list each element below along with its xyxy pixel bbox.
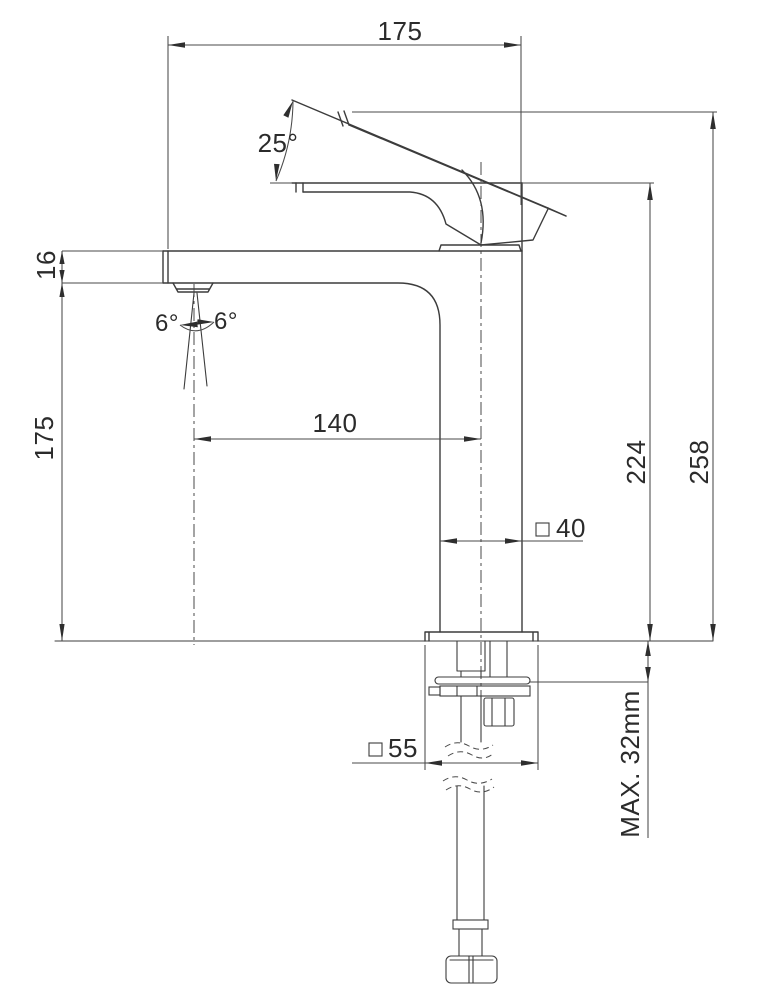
hose-hex-nut-facets — [450, 956, 493, 983]
dim-spout-reach-label: 140 — [313, 408, 358, 438]
water-spray-left-line — [184, 293, 194, 389]
dim-spout-thickness-label: 16 — [31, 250, 61, 280]
centerlines — [194, 162, 481, 740]
dim-body-top-height-label: 224 — [621, 440, 651, 485]
tap-dimension-diagram: 175 25° 16 6° 6° 175 140 224 258 40 55 M… — [0, 0, 763, 1000]
arrowhead — [647, 183, 653, 200]
arrowhead — [521, 760, 538, 766]
clamp-plate — [440, 686, 530, 696]
lever-raised-bottom-edge — [349, 125, 566, 216]
square-symbol-icon — [369, 743, 382, 756]
arrowhead — [464, 436, 481, 442]
mounting-nut — [484, 698, 514, 726]
mounting-nut-facets — [492, 698, 505, 726]
dim-top-width-label: 175 — [378, 16, 423, 46]
arrowhead — [194, 436, 211, 442]
clamp-plate-detail — [457, 686, 477, 696]
rod-break-line — [445, 743, 494, 758]
head-front-curve — [462, 170, 483, 243]
water-spray-right-line — [197, 293, 207, 386]
arrowhead — [645, 667, 651, 682]
arrowhead — [59, 283, 64, 297]
hose-collar — [453, 920, 488, 929]
arrowhead — [504, 42, 521, 48]
square-symbol-icon — [536, 523, 549, 536]
arrowhead — [505, 538, 522, 544]
faucet-outline — [55, 100, 713, 641]
dim-lever-angle-label: 25° — [258, 128, 299, 158]
technical-drawing-sheet: 175 25° 16 6° 6° 175 140 224 258 40 55 M… — [0, 0, 763, 1000]
mounting-hardware — [429, 641, 530, 983]
dim-overall-height-label: 258 — [684, 440, 714, 485]
arrowhead — [283, 101, 293, 118]
arrowhead — [647, 624, 653, 641]
arrowhead — [425, 760, 442, 766]
hose-neck — [459, 929, 482, 956]
head-neck-flange — [439, 245, 521, 251]
dimension-labels: 175 25° 16 6° 6° 175 140 224 258 40 55 M… — [29, 16, 714, 838]
arrowhead — [59, 624, 64, 641]
head-right-vee — [481, 209, 548, 245]
dim-spray-angle-left-label: 6° — [155, 310, 179, 337]
aerator — [173, 283, 213, 292]
clamp-plate-tab — [429, 687, 440, 695]
arrowhead — [710, 624, 716, 641]
clamp-studs — [490, 641, 507, 677]
spout-tip-cap — [163, 251, 168, 283]
arrowhead — [710, 112, 716, 129]
hose-break-line — [443, 777, 494, 792]
arrowhead — [440, 538, 457, 544]
threaded-rod — [461, 696, 481, 742]
dim-base-width-label: 55 — [388, 733, 418, 763]
dim-max-bench-thickness-label: MAX. 32mm — [615, 690, 645, 838]
arrowhead — [645, 641, 651, 656]
dim-spray-angle-right-label: 6° — [214, 308, 238, 335]
dim-body-width-label: 40 — [556, 513, 586, 543]
lever-closed-bottom-edge — [303, 192, 481, 245]
spout-arm-bottom-and-body-left — [163, 283, 440, 632]
lever-closed-end-cap — [296, 183, 303, 192]
dim-spout-height-label: 175 — [29, 416, 59, 461]
flexible-hose — [457, 786, 484, 920]
lever-tip-bevel — [548, 208, 566, 216]
arrowheads — [59, 42, 715, 766]
arrowhead — [168, 42, 185, 48]
horseshoe-washer — [435, 677, 530, 684]
